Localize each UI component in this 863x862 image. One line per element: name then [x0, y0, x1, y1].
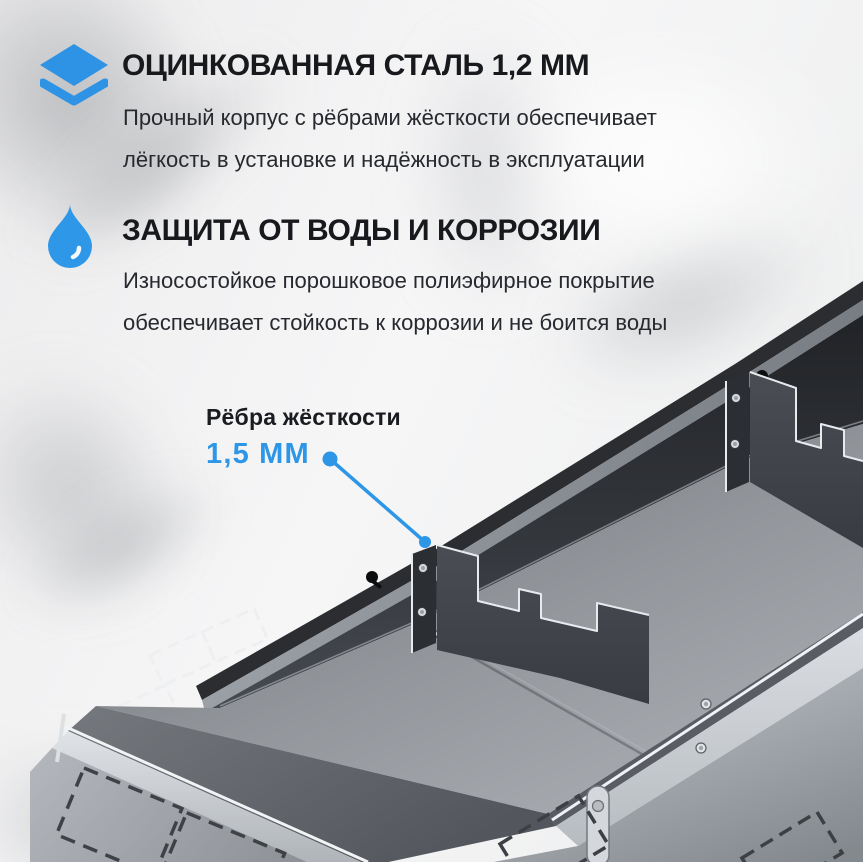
description-line: обеспечивает стойкость к коррозии и не б…: [123, 302, 667, 344]
infographic-page: ОЦИНКОВАННАЯ СТАЛЬ 1,2 ММ Прочный корпус…: [0, 0, 863, 862]
water-drop-icon: [48, 203, 92, 269]
description-line: Износостойкое порошковое полиэфирное пок…: [123, 260, 667, 302]
callout-value: 1,5 ММ: [206, 438, 310, 471]
feature-title-steel: ОЦИНКОВАННАЯ СТАЛЬ 1,2 ММ: [122, 49, 589, 83]
callout-leader-line: [323, 452, 432, 549]
description-line: лёгкость в установке и надёжность в эксп…: [123, 139, 657, 181]
layers-icon: [40, 44, 108, 108]
description-line: Прочный корпус с рёбрами жёсткости обесп…: [123, 97, 657, 139]
callout-label: Рёбра жёсткости: [206, 404, 401, 431]
feature-title-protection: ЗАЩИТА ОТ ВОДЫ И КОРРОЗИИ: [122, 214, 600, 248]
feature-description-steel: Прочный корпус с рёбрами жёсткости обесп…: [123, 97, 657, 181]
feature-description-protection: Износостойкое порошковое полиэфирное пок…: [123, 260, 667, 344]
